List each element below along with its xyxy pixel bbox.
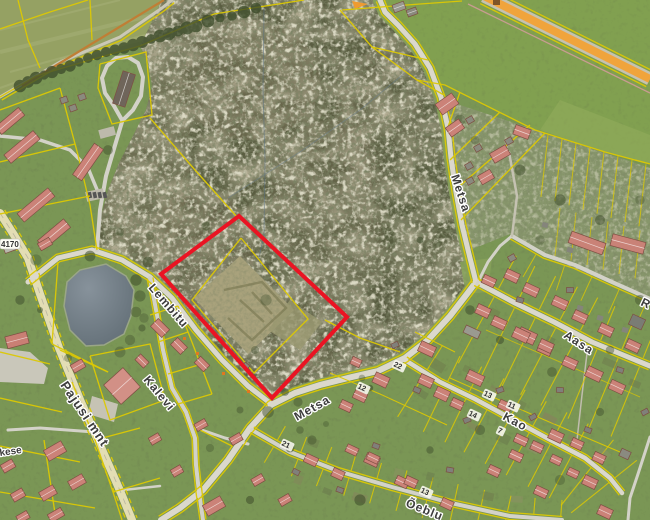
svg-text:4170: 4170 xyxy=(1,240,19,249)
